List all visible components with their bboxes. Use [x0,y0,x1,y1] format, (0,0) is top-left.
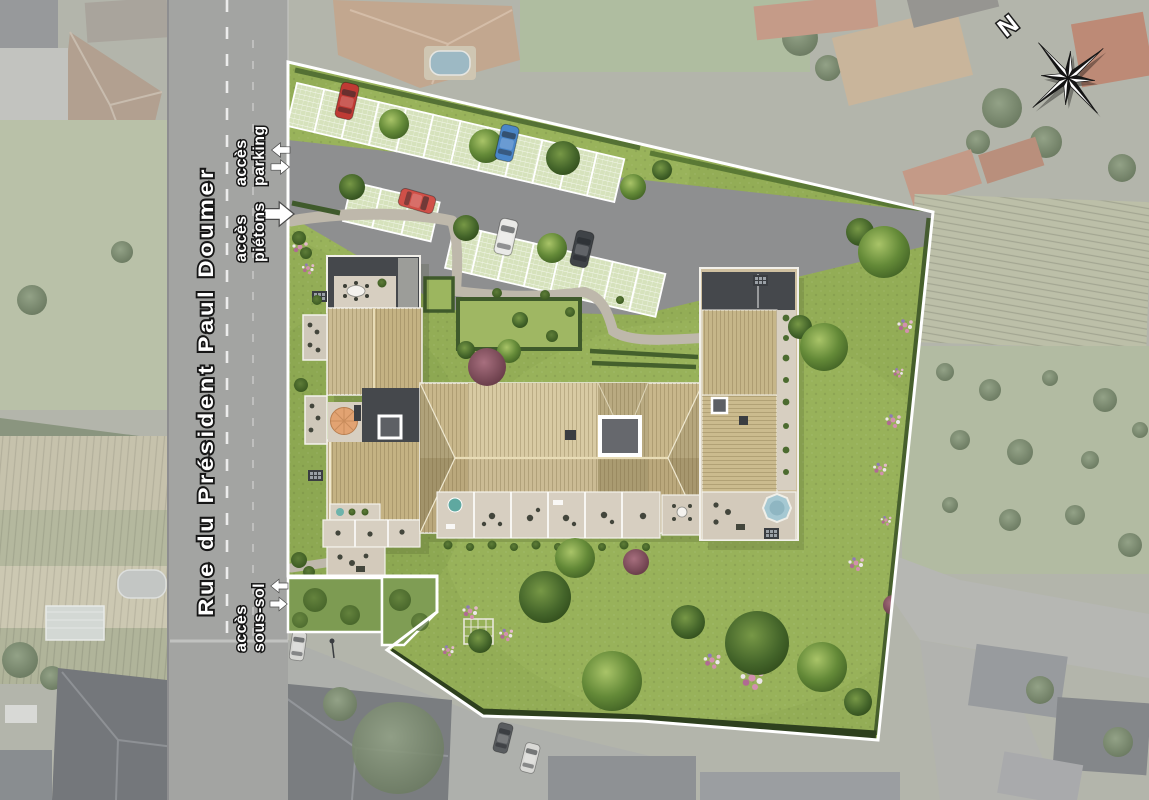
access-soussol-line2: sous-sol [251,583,268,652]
building-main-wing [420,383,704,551]
site-plan-canvas: Rue du Président Paul Doumer accès parki… [0,0,1149,800]
access-soussol-line1: accès [233,606,250,653]
access-pietons-line1: accès [233,216,250,263]
street-name-label: Rue du Président Paul Doumer [195,166,218,616]
access-parking-line1: accès [233,140,250,187]
access-parking-line2: parking [251,125,268,186]
building-northwest-wing [312,256,420,312]
access-pietons-line2: piétons [251,202,268,262]
building-east-wing [700,268,798,540]
site-plan-rendering: Rue du Président Paul Doumer accès parki… [0,0,1149,800]
purple-leaf-tree [468,348,506,386]
courtyard-skylight [600,417,640,455]
